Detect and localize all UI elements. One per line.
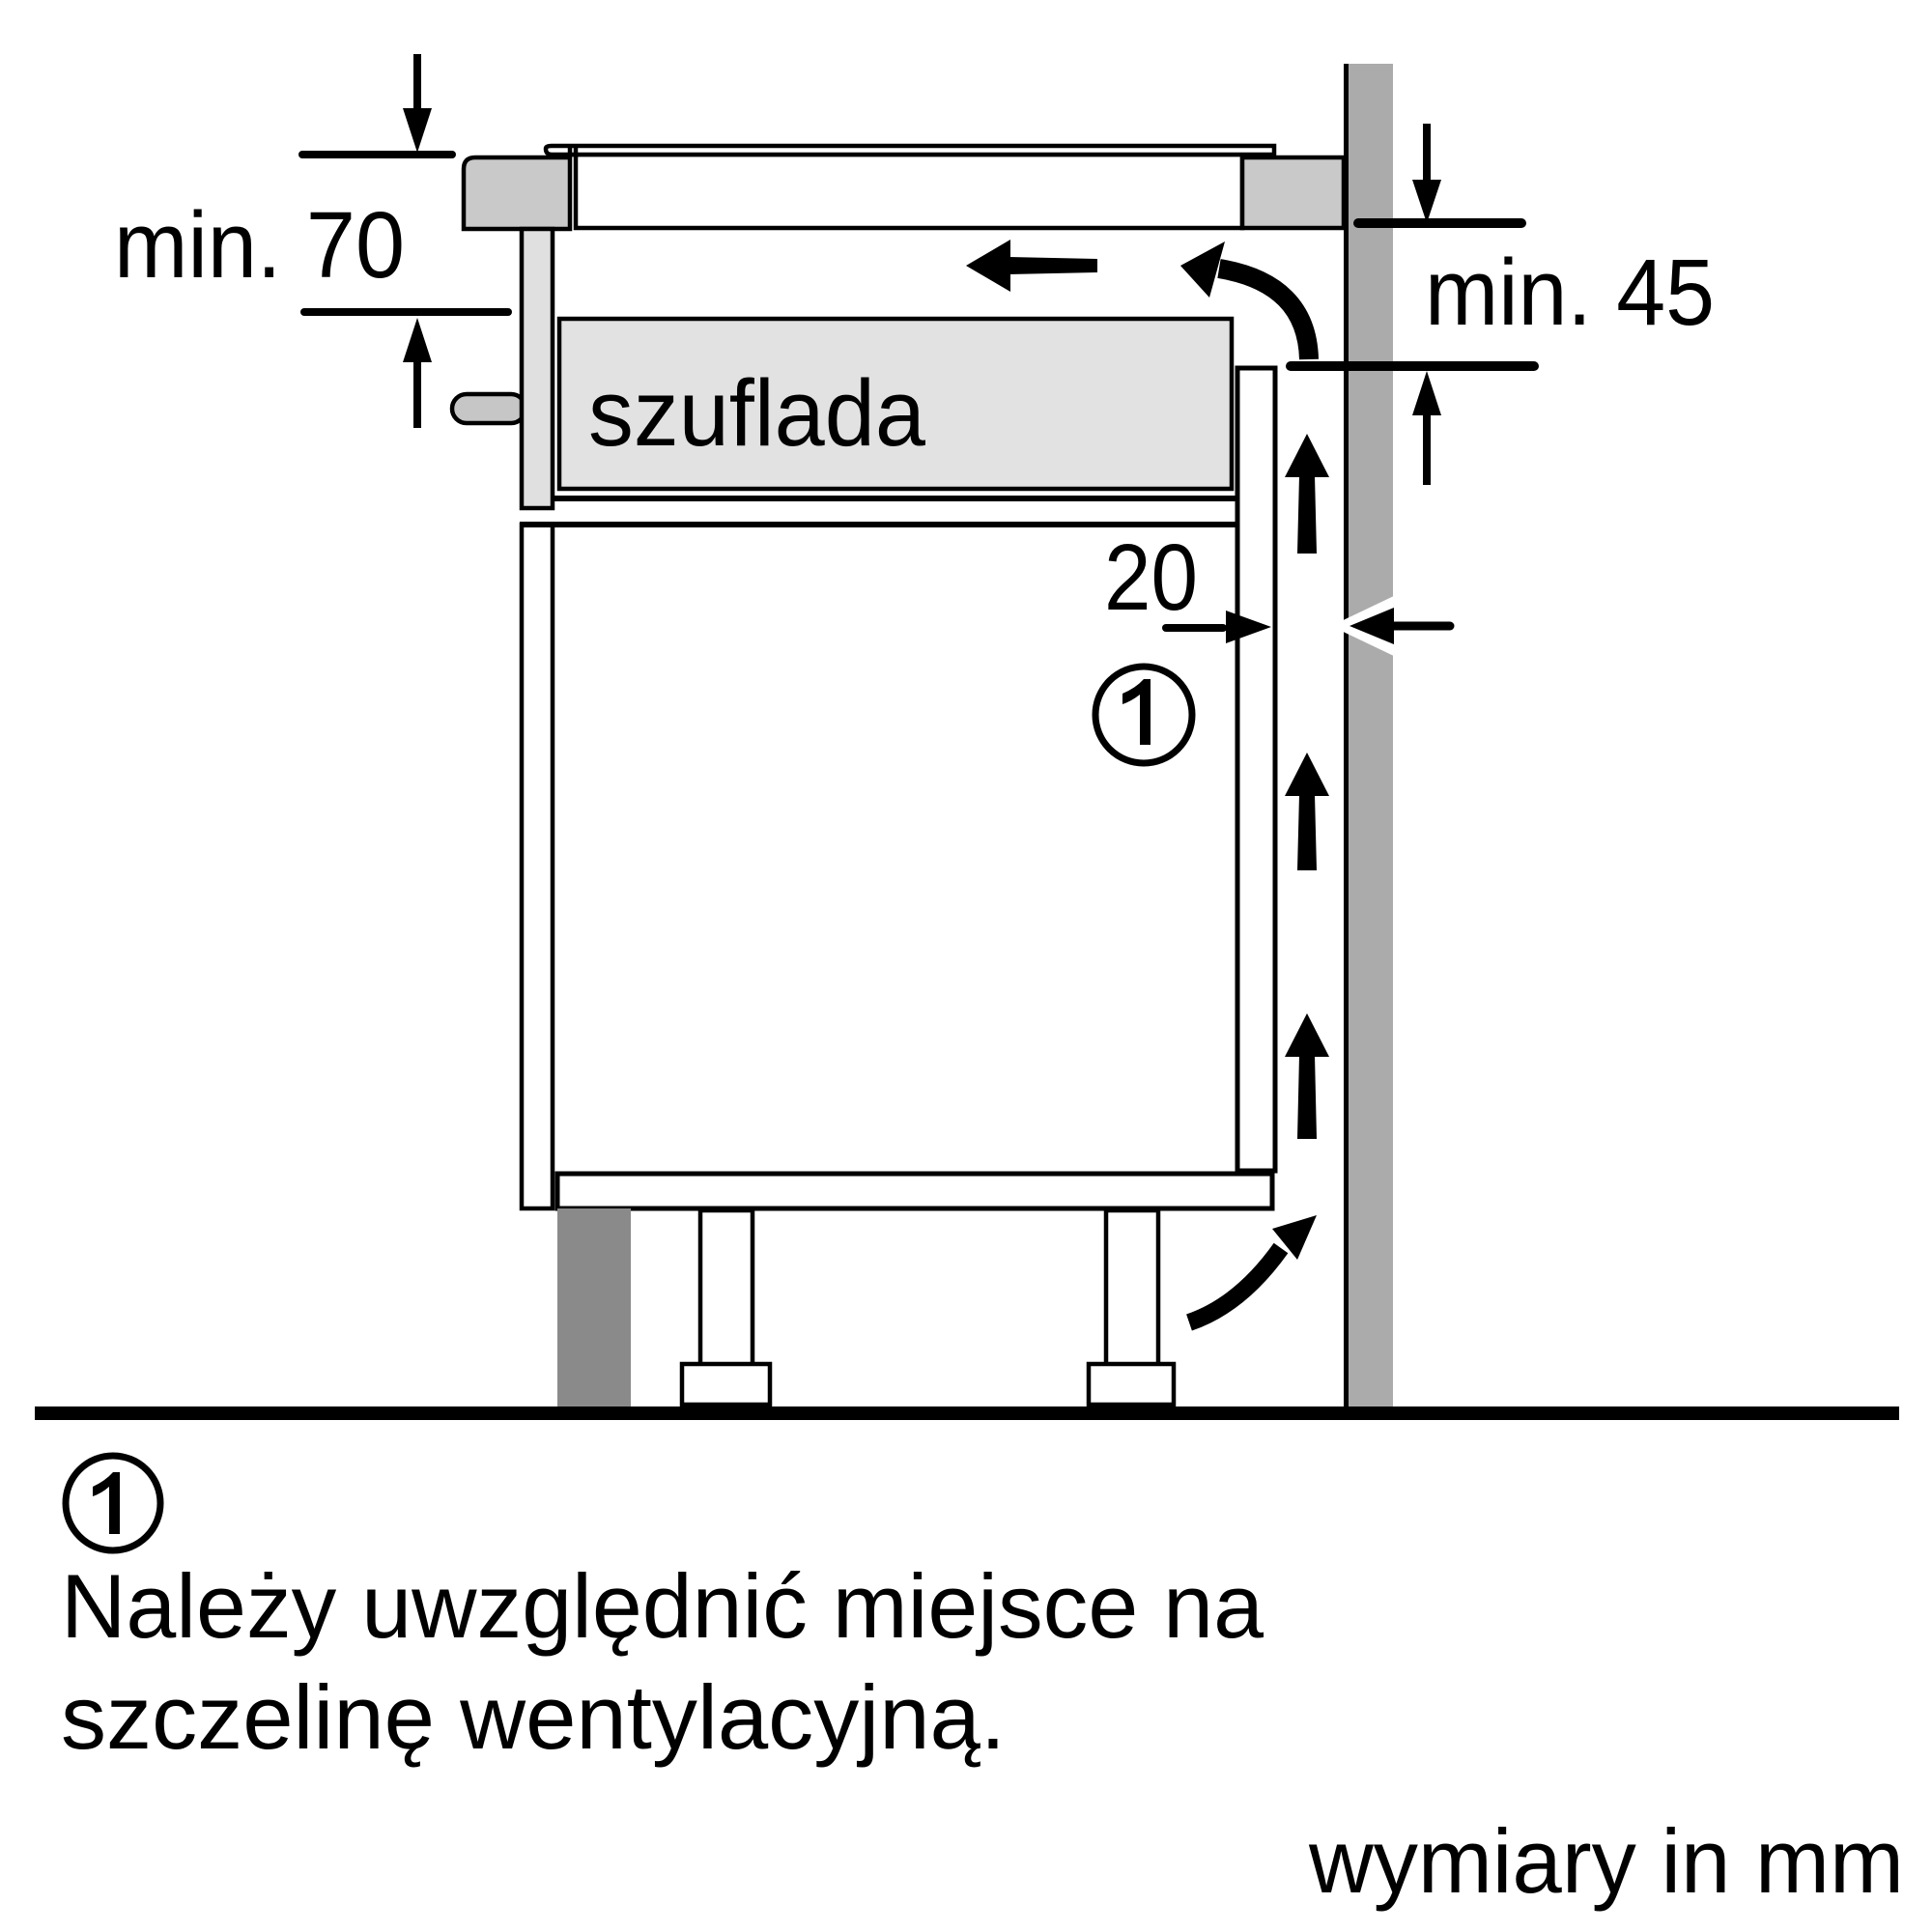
svg-text:szuflada: szuflada xyxy=(588,360,925,466)
svg-text:min. 70: min. 70 xyxy=(114,192,405,298)
svg-text:Należy uwzględnić miejsce na: Należy uwzględnić miejsce na xyxy=(61,1555,1264,1657)
svg-text:20: 20 xyxy=(1104,525,1198,630)
svg-text:wymiary in mm: wymiary in mm xyxy=(1308,1810,1904,1912)
svg-text:szczelinę wentylacyjną.: szczelinę wentylacyjną. xyxy=(61,1666,1006,1768)
svg-text:min. 45: min. 45 xyxy=(1425,240,1715,345)
